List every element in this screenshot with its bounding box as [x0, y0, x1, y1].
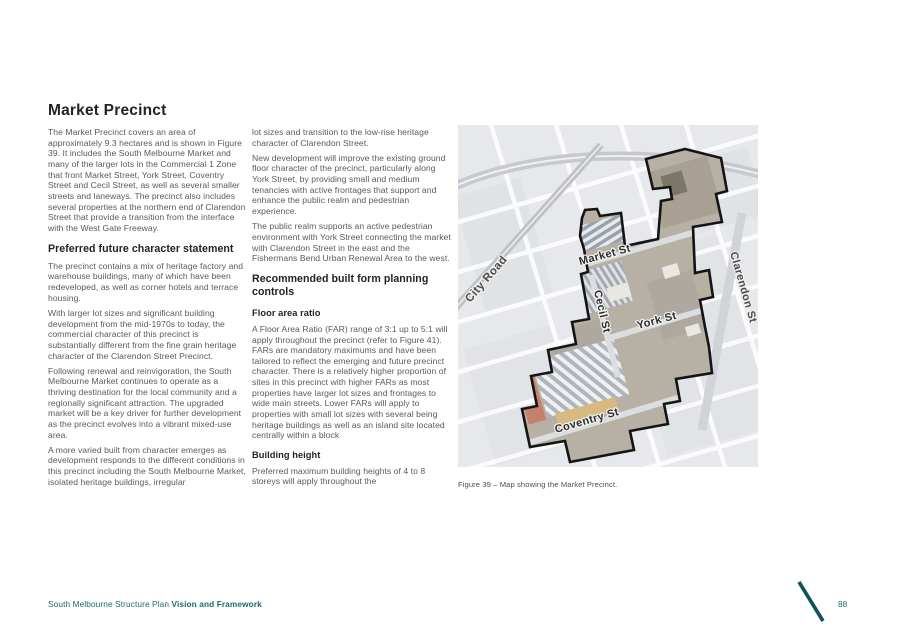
- paragraph-character-3: Following renewal and reinvigoration, th…: [48, 366, 248, 441]
- paragraph-building-height: Preferred maximum building heights of 4 …: [252, 466, 452, 487]
- footer-document-title: South Melbourne Structure Plan Vision an…: [48, 599, 262, 609]
- figure-caption: Figure 39 – Map showing the Market Preci…: [458, 480, 758, 489]
- logo-slash-mark: [794, 578, 828, 626]
- section-heading-built-form-controls: Recommended built form planning controls: [252, 273, 452, 299]
- section-heading-preferred-character: Preferred future character statement: [48, 243, 248, 256]
- paragraph-precinct-intro: The Market Precinct covers an area of ap…: [48, 127, 248, 234]
- footer-doc-emphasis: Vision and Framework: [171, 599, 261, 609]
- map-base: Market St Cecil St York St Coventry St C…: [458, 125, 758, 467]
- paragraph-new-development: New development will improve the existin…: [252, 153, 452, 217]
- paragraph-public-realm: The public realm supports an active pede…: [252, 221, 452, 264]
- subheading-floor-area-ratio: Floor area ratio: [252, 308, 452, 320]
- paragraph-character-2: With larger lot sizes and significant bu…: [48, 308, 248, 361]
- precinct-map: Market St Cecil St York St Coventry St C…: [458, 125, 758, 467]
- subheading-building-height: Building height: [252, 450, 452, 462]
- page-title: Market Precinct: [48, 102, 166, 120]
- paragraph-character-1: The precinct contains a mix of heritage …: [48, 261, 248, 304]
- paragraph-character-4: A more varied built from character emerg…: [48, 445, 248, 488]
- figure-39: Market St Cecil St York St Coventry St C…: [458, 125, 758, 489]
- left-text-column: The Market Precinct covers an area of ap…: [48, 127, 248, 492]
- paragraph-floor-area-ratio: A Floor Area Ratio (FAR) range of 3:1 up…: [252, 324, 452, 441]
- footer-doc-name: South Melbourne Structure Plan: [48, 599, 171, 609]
- page-number: 88: [838, 599, 847, 609]
- middle-text-column: lot sizes and transition to the low-rise…: [252, 127, 452, 491]
- paragraph-continuation: lot sizes and transition to the low-rise…: [252, 127, 452, 148]
